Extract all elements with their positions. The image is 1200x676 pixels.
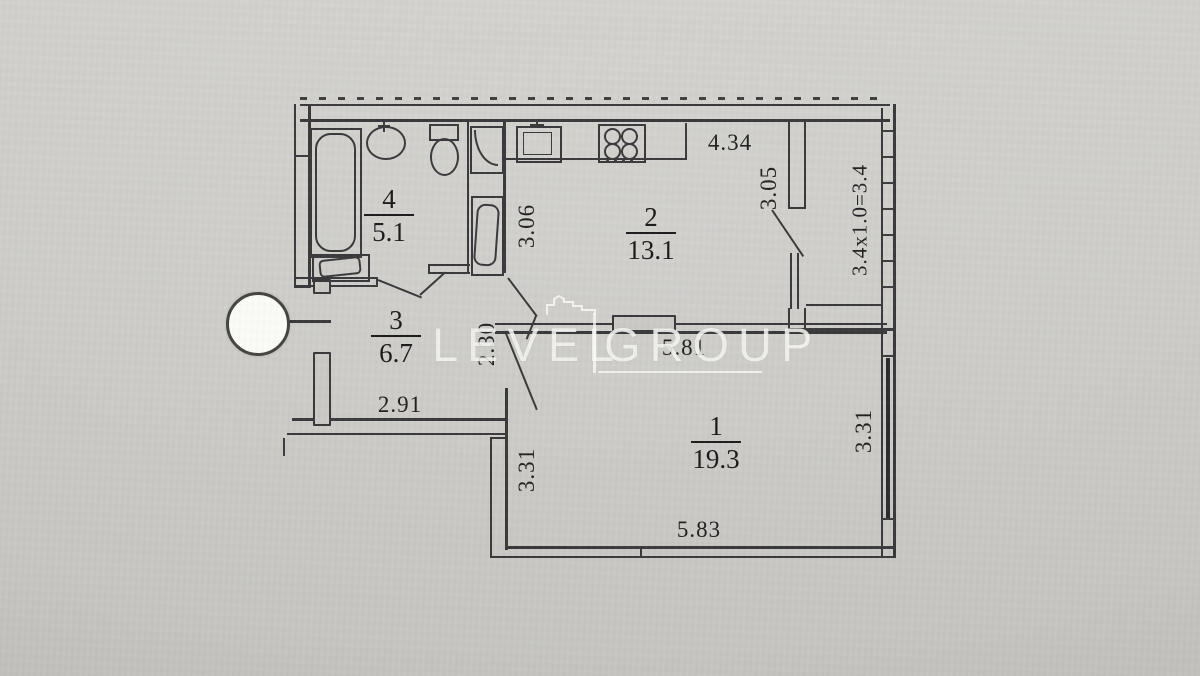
- room-label-divider: [371, 335, 421, 337]
- room-area: 5.1: [364, 218, 414, 247]
- wall: [300, 119, 890, 122]
- wall: [804, 121, 806, 209]
- dimension-tick: [640, 546, 642, 558]
- room-label-bathroom: 4 5.1: [364, 187, 414, 247]
- building-skyline-icon: [546, 293, 596, 315]
- floor-plan-photo: 4 5.1 2 13.1 3 6.7 1 19.3 4.34 3.05 3.06…: [0, 0, 1200, 676]
- stove-burner-icon: [604, 143, 621, 160]
- wall: [430, 264, 470, 266]
- door-leaf-bathroom: [378, 279, 422, 298]
- entrance-pointer-line: [285, 320, 331, 323]
- room-label-living: 1 19.3: [691, 414, 741, 474]
- faucet-icon: [530, 124, 544, 126]
- bathroom-sink-icon: [366, 126, 406, 160]
- wall-hatch: [300, 97, 888, 100]
- wall: [893, 330, 896, 558]
- window-glazing: [886, 358, 890, 518]
- entrance-marker-circle: [226, 292, 290, 356]
- wall: [788, 207, 806, 209]
- door-leaf-balcony: [771, 209, 804, 257]
- faucet-icon: [378, 125, 390, 127]
- room-number: 2: [626, 205, 676, 230]
- room-label-hall: 3 6.7: [371, 308, 421, 368]
- wall: [788, 121, 790, 209]
- wall: [490, 437, 492, 558]
- balcony-window-frame: [790, 253, 792, 309]
- dimension-label: 3.31: [851, 409, 877, 453]
- wall-stub: [313, 352, 331, 426]
- wall: [428, 264, 430, 274]
- room-label-kitchen: 2 13.1: [626, 205, 676, 265]
- window-sill: [881, 355, 894, 357]
- stove-knobs-icon: [606, 160, 634, 163]
- wall: [881, 330, 883, 558]
- wall: [430, 272, 470, 274]
- balcony-window-frame: [797, 253, 799, 309]
- wall: [300, 104, 890, 106]
- wall: [505, 546, 895, 549]
- water-heater-inner-icon: [473, 203, 500, 266]
- stove-burner-icon: [621, 143, 638, 160]
- wall: [283, 438, 285, 456]
- room-area: 6.7: [371, 339, 421, 368]
- dimension-label: 3.05: [756, 166, 782, 210]
- wall: [893, 104, 896, 330]
- balcony-glazing-ticks: [883, 130, 893, 310]
- room-number: 1: [691, 414, 741, 439]
- dimension-label: 5.83: [677, 517, 721, 543]
- window-sill: [881, 518, 894, 520]
- kitchen-counter-end: [685, 123, 687, 160]
- dimension-label: 3.06: [514, 204, 540, 248]
- wall: [287, 433, 505, 435]
- wall: [490, 437, 507, 439]
- room-label-divider: [691, 441, 741, 443]
- toilet-bowl-icon: [430, 138, 459, 176]
- wall: [294, 285, 378, 287]
- wall: [505, 388, 508, 550]
- wall: [294, 155, 310, 157]
- wall: [294, 104, 296, 288]
- balcony-inner-edge: [806, 304, 883, 306]
- dimension-label-balcony: 3.4x1.0=3.4: [848, 164, 873, 276]
- wall: [467, 121, 469, 273]
- watermark-underline: [598, 371, 762, 373]
- room-area: 19.3: [691, 445, 741, 474]
- watermark-brand-right: GROUP: [604, 322, 821, 368]
- room-area: 13.1: [626, 236, 676, 265]
- door-leaf-kitchen: [507, 277, 537, 317]
- room-number: 3: [371, 308, 421, 333]
- door-arc-bathroom: [419, 272, 446, 296]
- dimension-label: 4.34: [708, 130, 752, 156]
- dimension-label: 3.31: [514, 448, 540, 492]
- dimension-label: 2.91: [378, 392, 422, 418]
- bathtub-icon: [315, 133, 356, 252]
- room-label-divider: [364, 214, 414, 216]
- watermark-divider: [593, 313, 596, 373]
- room-number: 4: [364, 187, 414, 212]
- wall: [490, 556, 895, 558]
- room-label-divider: [626, 232, 676, 234]
- kitchen-sink-basin-icon: [523, 132, 552, 155]
